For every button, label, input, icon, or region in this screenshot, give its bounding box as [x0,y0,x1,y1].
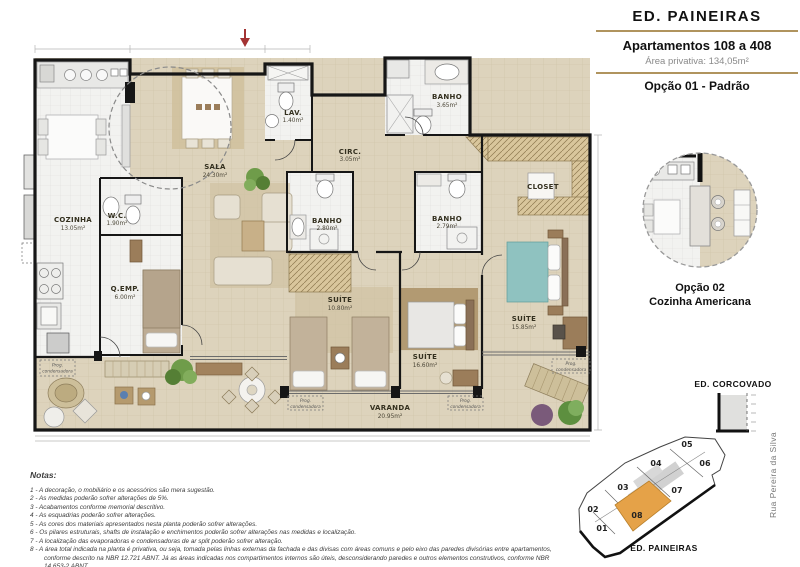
svg-text:Prog.: Prog. [52,363,63,369]
street-label: Rua Pereira da Silva [768,415,778,535]
kitchen-option-detail: Opção 02 Cozinha Americana [632,148,772,313]
brochure-page: Prog. condensadora Prog. condensadora Pr… [0,0,800,567]
corcovado-block [716,393,756,432]
option2-subtitle: Cozinha Americana [649,296,752,308]
svg-text:1.90m²: 1.90m² [107,220,128,227]
room-label-banho-social: BANHO [432,93,462,101]
floor-plan: Prog. condensadora Prog. condensadora Pr… [10,25,610,450]
svg-text:6.00m²: 6.00m² [115,294,136,301]
svg-text:1.40m²: 1.40m² [283,117,304,124]
apartments-range: Apartamentos 108 a 408 [596,38,798,53]
room-label-wc: W.C. [108,212,127,220]
svg-text:13.05m²: 13.05m² [61,225,86,232]
svg-text:Prog.: Prog. [300,398,311,404]
room-label-suite1: SUÍTE [328,295,352,304]
svg-text:3.65m²: 3.65m² [437,102,458,109]
entry-arrow [240,29,250,47]
facade-lines [35,436,590,441]
notes-list: 1 - A decoração, o mobiliário e os acess… [30,487,560,567]
unit-04: 04 [650,459,662,468]
room-label-banho-suite1: BANHO [312,217,342,225]
unit-02: 02 [587,505,598,514]
note-item: 5 - As cores dos materiais apresentados … [30,521,560,529]
note-item: 8 - A área total indicada na planta é pr… [30,546,560,567]
svg-text:condensadora: condensadora [42,369,73,375]
private-area: Área privativa: 134,05m² [596,56,798,67]
svg-text:condensadora: condensadora [290,404,321,410]
room-label-sala: SALA [204,163,226,171]
room-label-suite3: SUÍTE [512,314,536,323]
building-footprint: 01 02 03 04 05 06 07 08 [579,437,725,557]
unit-01: 01 [596,524,608,533]
room-label-varanda: VARANDA [370,404,411,412]
site-plan: ED. CORCOVADO 01 02 03 04 05 06 07 [565,372,800,567]
option1-label: Opção 01 - Padrão [596,79,798,93]
unit-06: 06 [699,459,711,468]
svg-text:16.60m²: 16.60m² [413,362,438,369]
unit-05: 05 [681,440,693,449]
svg-text:20.95m²: 20.95m² [378,413,403,420]
room-label-banho-suite2: BANHO [432,215,462,223]
gold-rule [596,30,798,32]
svg-text:10.80m²: 10.80m² [328,305,353,312]
svg-text:Prog.: Prog. [460,398,471,404]
room-label-closet: CLOSET [527,183,559,191]
svg-text:15.85m²: 15.85m² [512,324,537,331]
room-label-suite2: SUÍTE [413,352,437,361]
notes-block: Notas: 1 - A decoração, o mobiliário e o… [30,470,560,567]
gold-rule [596,72,798,74]
unit-08: 08 [631,511,643,520]
svg-text:24.30m²: 24.30m² [203,172,228,179]
note-item: 3 - Acabamentos conforme memorial descri… [30,504,560,512]
svg-text:condensadora: condensadora [450,404,481,410]
note-item: 1 - A decoração, o mobiliário e os acess… [30,487,560,495]
title-block: ED. PAINEIRAS Apartamentos 108 a 408 Áre… [596,8,798,93]
note-item: 7 - A localização das evaporadoras e con… [30,538,560,546]
notes-title: Notas: [30,470,560,480]
room-label-cozinha: COZINHA [54,216,92,224]
corcovado-label: ED. CORCOVADO [694,379,771,389]
note-item: 2 - As medidas poderão sofrer alterações… [30,495,560,503]
note-item: 4 - As esquadrias poderão sofrer alteraç… [30,512,560,520]
room-label-circ: CIRC. [339,148,361,156]
svg-text:2.79m²: 2.79m² [437,223,458,230]
svg-text:2.80m²: 2.80m² [317,225,338,232]
detail-mini-plan [640,150,762,269]
unit-03: 03 [617,483,628,492]
option2-title: Opção 02 [675,282,725,294]
svg-text:3.05m²: 3.05m² [340,156,361,163]
room-label-qemp: Q.EMP. [111,285,140,293]
note-item: 6 - Os pilares estruturais, shafts de in… [30,529,560,537]
room-label-lav: LAV. [284,109,302,117]
building-title: ED. PAINEIRAS [596,8,798,25]
svg-text:Prog.: Prog. [565,361,576,367]
site-building-label: ED. PAINEIRAS [630,543,697,553]
service-shafts [22,155,35,263]
unit-07: 07 [671,486,682,495]
